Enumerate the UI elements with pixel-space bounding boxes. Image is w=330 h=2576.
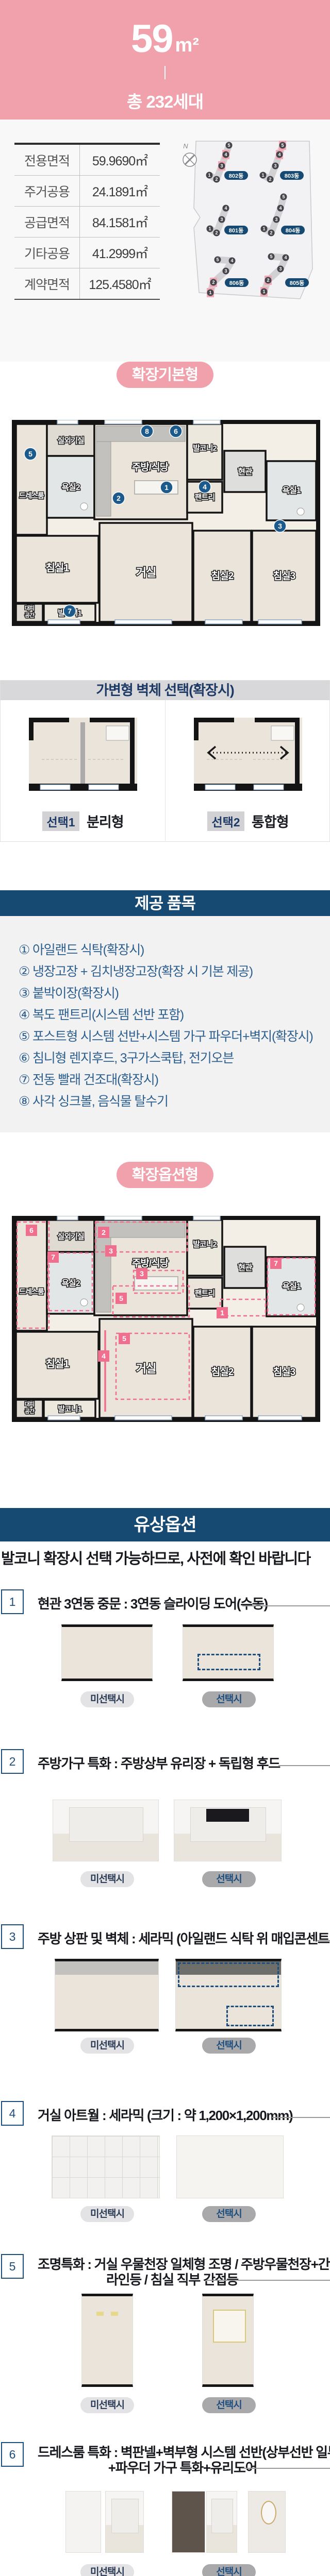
svg-text:1: 1 [262, 226, 265, 231]
hood-shape [206, 1809, 249, 1822]
svg-text:4: 4 [102, 1352, 106, 1360]
item2-image-selected [174, 1800, 282, 1861]
title-rule [272, 2117, 330, 2118]
svg-text:4: 4 [224, 152, 227, 157]
svg-text:실외기실: 실외기실 [57, 436, 84, 445]
svg-text:거실: 거실 [136, 1362, 156, 1375]
svg-text:4: 4 [278, 152, 280, 157]
item-number: 4 [1, 2101, 24, 2126]
highlight-dashed-box [197, 1654, 260, 1670]
svg-text:2: 2 [212, 280, 214, 285]
item6-image-glassdoor [172, 2491, 205, 2553]
svg-text:침실2: 침실2 [211, 1366, 234, 1378]
svg-text:1: 1 [209, 290, 211, 295]
list-item: ⑧ 사각 싱크볼, 음식물 탈수기 [19, 1094, 330, 1109]
svg-text:거실: 거실 [136, 566, 156, 579]
svg-text:2: 2 [270, 230, 272, 235]
row-value: 41.2999㎡ [80, 238, 160, 268]
svg-text:2: 2 [215, 177, 218, 182]
svg-text:7: 7 [274, 1259, 278, 1267]
area-spec-table: 전용면적59.9690㎡ 주거공용24.1891㎡ 공급면적84.1581㎡ 기… [14, 143, 160, 300]
svg-text:1: 1 [208, 173, 210, 178]
light-shape [96, 2312, 104, 2316]
svg-text:욕실1: 욕실1 [282, 486, 301, 495]
label-unselected: 미선택시 [80, 1871, 134, 1887]
floorplan-svg: 드레스룸실외기실욕실2주방/식당발코니2팬트리현관욕실1침실1거실침실2침실3대… [12, 1216, 320, 1422]
row-label: 공급면적 [14, 207, 80, 238]
highlight-dashed-box [178, 1962, 279, 1987]
site-map-svg: N1234801동12345802동12345803동12345804동1234… [180, 140, 315, 332]
svg-text:팬트리: 팬트리 [195, 493, 215, 502]
svg-text:욕실2: 욕실2 [61, 483, 80, 492]
item3-image-selected [175, 1959, 282, 2031]
svg-text:801동: 801동 [229, 227, 243, 234]
svg-text:7: 7 [51, 1253, 55, 1261]
wall-option-svg [29, 710, 137, 798]
floorplan-svg: 드레스룸실외기실욕실2주방/식당발코니2팬트리현관욕실1침실1거실침실2침실3대… [12, 420, 320, 626]
svg-text:5: 5 [282, 194, 285, 199]
row-value: 84.1581㎡ [80, 207, 160, 238]
row-value: 59.9690㎡ [80, 144, 160, 176]
item-title-line2: 라인등 / 침실 직부 간접등 [106, 2269, 238, 2289]
area-value: 59 [131, 20, 173, 59]
svg-text:발코니2: 발코니2 [193, 444, 217, 453]
item6-image [65, 2491, 101, 2553]
mirror-shape [261, 2501, 276, 2524]
table-row: 계약면적125.4580㎡ [14, 268, 160, 300]
item1-image-unselected [61, 1624, 153, 1681]
svg-text:5: 5 [28, 450, 32, 458]
svg-text:1: 1 [220, 1309, 224, 1317]
svg-text:공간: 공간 [25, 612, 35, 619]
label-selected: 선택시 [202, 1691, 256, 1707]
wall-option-2-plan [194, 710, 302, 798]
list-item: ③ 붙박이장(확장시) [19, 986, 330, 1001]
svg-text:3: 3 [220, 163, 223, 168]
svg-text:4: 4 [279, 206, 282, 211]
wall-select-panel: 가변형 벽체 선택(확장시) 선택1 분리형 선택2 통합형 [0, 680, 330, 842]
wall-option-2-caption: 선택2 통합형 [166, 811, 330, 831]
svg-text:침실1: 침실1 [46, 562, 70, 574]
svg-text:3: 3 [274, 163, 276, 168]
svg-text:3: 3 [109, 1247, 113, 1255]
wall-option-svg [194, 710, 302, 798]
title-rule [206, 2280, 330, 2281]
svg-text:2: 2 [267, 278, 269, 283]
svg-text:실외기실: 실외기실 [57, 1232, 84, 1241]
svg-text:현관: 현관 [238, 1263, 253, 1273]
svg-text:5: 5 [281, 143, 284, 148]
svg-text:드레스룸: 드레스룸 [19, 1287, 44, 1296]
svg-text:3: 3 [275, 217, 277, 222]
item6-image-powder [248, 2491, 286, 2553]
table-row: 주거공용24.1891㎡ [14, 176, 160, 207]
label-selected: 선택시 [202, 2038, 256, 2054]
svg-text:803동: 803동 [285, 173, 299, 179]
list-item: ⑥ 침니형 렌지후드, 3구가스쿡탑, 전기오븐 [19, 1051, 330, 1065]
table-row: 공급면적84.1581㎡ [14, 207, 160, 238]
svg-text:2: 2 [269, 177, 271, 182]
option-name: 분리형 [87, 811, 124, 831]
svg-text:2: 2 [117, 494, 121, 502]
area-unit: m² [175, 35, 199, 57]
light-shape [111, 2312, 118, 2316]
row-label: 계약면적 [14, 268, 80, 300]
item-number: 5 [1, 2254, 24, 2279]
summary-section: 전용면적59.9690㎡ 주거공용24.1891㎡ 공급면적84.1581㎡ 기… [0, 120, 330, 362]
item2-image-unselected [53, 1800, 159, 1861]
counter-shape [55, 1961, 158, 1975]
svg-text:팬트리: 팬트리 [195, 1289, 215, 1298]
provided-items-header: 제공 품목 [0, 890, 330, 916]
item-number: 2 [1, 1749, 24, 1774]
floorplan-option: 드레스룸실외기실욕실2주방/식당발코니2팬트리현관욕실1침실1거실침실2침실3대… [12, 1216, 320, 1422]
title-rule [317, 1940, 330, 1941]
label-selected: 선택시 [202, 2564, 256, 2576]
item1-image-selected [183, 1624, 274, 1681]
label-unselected: 미선택시 [80, 1691, 134, 1707]
item4-image-unselected [52, 2136, 160, 2198]
row-label: 주거공용 [14, 176, 80, 207]
row-label: 기타공용 [14, 238, 80, 268]
item-number: 3 [1, 1924, 24, 1949]
item-number: 1 [1, 1589, 24, 1614]
svg-text:5: 5 [216, 257, 219, 262]
hero-header: 59 m² 총 232세대 [0, 0, 330, 120]
svg-text:공간: 공간 [25, 1408, 35, 1415]
svg-text:1: 1 [261, 173, 264, 178]
table-row: 전용면적59.9690㎡ [14, 144, 160, 176]
svg-text:1: 1 [262, 289, 265, 294]
provided-items-section: ① 아일랜드 식탁(확장시) ② 냉장고장 + 김치냉장고장(확장 시 기본 제… [0, 916, 330, 1132]
wall-option-1-caption: 선택1 분리형 [1, 811, 166, 831]
wall-option-1-plan [29, 710, 137, 798]
list-item: ② 냉장고장 + 김치냉장고장(확장 시 기본 제공) [19, 964, 330, 979]
svg-text:2: 2 [102, 1228, 106, 1236]
svg-text:드레스룸: 드레스룸 [19, 492, 44, 500]
svg-text:5: 5 [122, 1334, 126, 1343]
floorplan-basic: 드레스룸실외기실욕실2주방/식당발코니2팬트리현관욕실1침실1거실침실2침실3대… [12, 420, 320, 626]
provided-items-list: ① 아일랜드 식탁(확장시) ② 냉장고장 + 김치냉장고장(확장 시 기본 제… [0, 916, 330, 1109]
svg-text:발코니2: 발코니2 [193, 1240, 217, 1249]
item5-image-selected [202, 2294, 254, 2387]
wall-select-title: 가변형 벽체 선택(확장시) [1, 681, 329, 700]
item3-image-unselected [55, 1959, 159, 2031]
svg-text:주방/식당: 주방/식당 [132, 1258, 169, 1269]
svg-text:6: 6 [174, 427, 178, 435]
item6-image [206, 2491, 237, 2553]
item-title: 주방가구 특화 : 주방상부 유리장 + 독립형 후드 [38, 1753, 280, 1772]
svg-text:3: 3 [224, 268, 227, 274]
svg-text:3: 3 [279, 266, 282, 272]
item-title-line2: +파우더 가구 특화+유리도어 [38, 2458, 327, 2477]
label-unselected: 미선택시 [80, 2397, 134, 2413]
svg-text:8: 8 [145, 427, 149, 435]
svg-text:4: 4 [230, 258, 233, 263]
list-item: ⑦ 전동 빨래 건조대(확장시) [19, 1073, 330, 1087]
option-tag: 선택2 [207, 811, 244, 831]
list-item: ④ 복도 팬트리(시스템 선반 포함) [19, 1008, 330, 1022]
coffered-ceiling-shape [213, 2310, 246, 2343]
item-title: 주방 상판 및 벽체 : 세라믹 (아일랜드 식탁 위 매입콘센트 포함) [38, 1928, 330, 1947]
svg-text:4: 4 [224, 206, 227, 211]
svg-text:7: 7 [68, 607, 72, 615]
svg-text:1: 1 [164, 483, 169, 492]
svg-text:침실3: 침실3 [273, 570, 295, 582]
svg-text:3: 3 [220, 217, 223, 222]
row-label: 전용면적 [14, 144, 80, 176]
item5-image-unselected [81, 2294, 133, 2387]
svg-text:N: N [183, 142, 188, 150]
svg-text:806동: 806동 [229, 280, 244, 286]
svg-text:욕실2: 욕실2 [61, 1279, 80, 1288]
svg-text:5: 5 [270, 254, 272, 259]
item4-image-selected [176, 2136, 284, 2198]
svg-text:3: 3 [140, 1269, 144, 1278]
svg-text:욕실1: 욕실1 [282, 1282, 301, 1291]
list-item: ⑤ 포스트형 시스템 선반+시스템 가구 파우더+벽지(확장시) [19, 1029, 330, 1044]
paid-options-header: 유상옵션 [0, 1508, 330, 1541]
page: 59 m² 총 232세대 전용면적59.9690㎡ 주거공용24.1891㎡ … [0, 0, 330, 2576]
svg-text:5: 5 [227, 143, 230, 148]
label-unselected: 미선택시 [80, 2038, 134, 2054]
option-tag: 선택1 [42, 811, 79, 831]
svg-text:침실2: 침실2 [211, 570, 234, 582]
item-title: 현관 3연동 중문 : 3연동 슬라이딩 도어(수동) [38, 1594, 268, 1613]
svg-text:현관: 현관 [238, 467, 253, 477]
label-unselected: 미선택시 [80, 2564, 134, 2576]
highlight-dashed-box [226, 2006, 274, 2026]
svg-text:대피: 대피 [25, 1400, 34, 1408]
hero-divider [164, 66, 166, 79]
label-selected: 선택시 [202, 2397, 256, 2413]
title-rule [241, 2468, 330, 2469]
svg-text:802동: 802동 [229, 173, 243, 179]
svg-text:804동: 804동 [286, 227, 300, 234]
svg-text:발코니1: 발코니1 [58, 1405, 81, 1414]
plan-type-badge-option: 확장옵션형 [117, 1162, 213, 1188]
svg-text:5: 5 [119, 1294, 123, 1302]
svg-text:1: 1 [208, 226, 211, 231]
site-map: N1234801동12345802동12345803동12345804동1234… [180, 140, 315, 332]
svg-text:3: 3 [278, 522, 282, 530]
item6-image [105, 2491, 144, 2553]
list-item: ① 아일랜드 식탁(확장시) [19, 943, 330, 957]
svg-text:침실3: 침실3 [273, 1366, 295, 1378]
item-title: 거실 아트월 : 세라믹 (크기 : 약 1,200×1,200mm) [38, 2105, 292, 2124]
svg-text:4: 4 [203, 483, 207, 491]
svg-text:주방/식당: 주방/식당 [132, 462, 169, 473]
label-selected: 선택시 [202, 1871, 256, 1887]
label-unselected: 미선택시 [80, 2206, 134, 2222]
svg-text:6: 6 [29, 1226, 34, 1234]
svg-text:2: 2 [215, 230, 218, 235]
svg-text:대피: 대피 [25, 604, 34, 612]
title-rule [278, 1765, 330, 1766]
paid-options-subtitle: 발코니 확장시 선택 가능하므로, 사전에 확인 바랍니다 [1, 1547, 310, 1568]
svg-text:침실1: 침실1 [46, 1358, 70, 1370]
row-value: 125.4580㎡ [80, 268, 160, 300]
plan-type-badge-basic: 확장기본형 [117, 362, 213, 388]
svg-text:4: 4 [284, 255, 287, 260]
label-selected: 선택시 [202, 2206, 256, 2222]
title-rule [242, 1605, 330, 1606]
row-value: 24.1891㎡ [80, 176, 160, 207]
total-units: 총 232세대 [0, 88, 330, 113]
option-name: 통합형 [252, 811, 289, 831]
item-number: 6 [1, 2442, 24, 2467]
table-row: 기타공용41.2999㎡ [14, 238, 160, 268]
svg-text:805동: 805동 [290, 280, 304, 286]
